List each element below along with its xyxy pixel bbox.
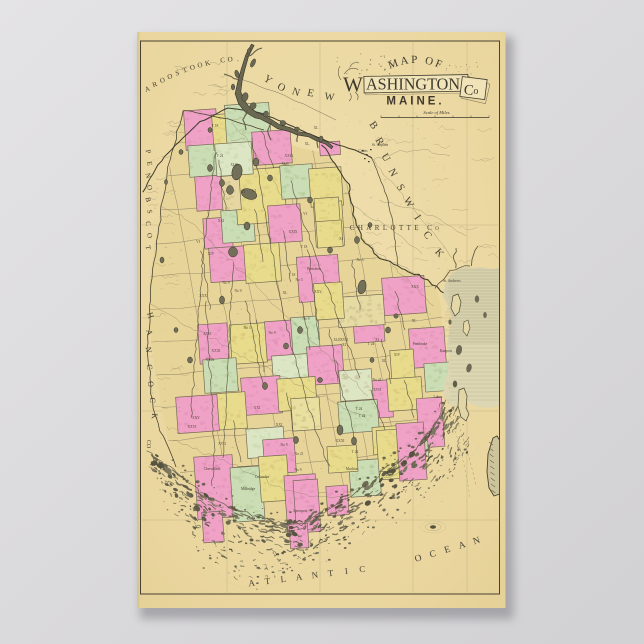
svg-text:XIV: XIV bbox=[394, 353, 401, 357]
svg-text:T 24: T 24 bbox=[352, 450, 359, 454]
svg-text:Milbridge: Milbridge bbox=[241, 487, 256, 491]
svg-text:St. Andrews: St. Andrews bbox=[443, 279, 461, 283]
svg-text:No 21: No 21 bbox=[386, 463, 395, 467]
svg-text:T 24: T 24 bbox=[359, 414, 366, 418]
svg-text:XXV: XXV bbox=[192, 416, 200, 420]
svg-text:ASHINGTON: ASHINGTON bbox=[366, 75, 460, 94]
svg-text:XXIX: XXIX bbox=[289, 230, 298, 234]
svg-text:Eastport: Eastport bbox=[440, 349, 452, 353]
svg-text:N: N bbox=[144, 346, 154, 353]
svg-text:XXIX: XXIX bbox=[206, 358, 215, 362]
svg-text:T 18: T 18 bbox=[212, 124, 219, 128]
svg-text:No 3: No 3 bbox=[356, 258, 363, 262]
svg-text:No 3: No 3 bbox=[243, 326, 250, 330]
svg-text:XXX: XXX bbox=[199, 294, 207, 298]
svg-text:Cherryfield: Cherryfield bbox=[204, 467, 221, 471]
svg-text:No 9: No 9 bbox=[302, 317, 309, 321]
svg-text:XXXI: XXXI bbox=[212, 349, 222, 353]
svg-text:XVII: XVII bbox=[218, 442, 226, 446]
svg-text:No 9: No 9 bbox=[234, 289, 241, 293]
svg-text:W: W bbox=[324, 91, 335, 103]
svg-text:K: K bbox=[150, 413, 159, 420]
svg-text:No 9: No 9 bbox=[294, 468, 301, 472]
svg-text:No 9: No 9 bbox=[280, 443, 287, 447]
svg-text:Columbia: Columbia bbox=[255, 475, 270, 479]
svg-text:Machias: Machias bbox=[346, 467, 359, 471]
svg-text:CHARLOTTE CO: CHARLOTTE CO bbox=[350, 224, 442, 232]
svg-text:XIV: XIV bbox=[208, 252, 215, 256]
svg-text:XL: XL bbox=[403, 461, 408, 465]
svg-text:C: C bbox=[145, 364, 154, 370]
svg-text:XXI: XXI bbox=[276, 423, 283, 427]
svg-text:Jonesport: Jonesport bbox=[293, 509, 307, 513]
svg-text:XXXI: XXXI bbox=[336, 439, 346, 443]
svg-text:XL: XL bbox=[283, 291, 288, 295]
svg-text:T 18: T 18 bbox=[289, 273, 296, 277]
svg-text:XL: XL bbox=[314, 126, 319, 130]
svg-text:T 24: T 24 bbox=[217, 154, 224, 158]
svg-text:XXVI: XXVI bbox=[188, 425, 198, 429]
svg-text:XVII: XVII bbox=[373, 388, 381, 392]
svg-text:CO: CO bbox=[145, 440, 151, 449]
svg-text:MAINE.: MAINE. bbox=[386, 95, 444, 107]
svg-text:C: C bbox=[148, 397, 157, 403]
svg-text:XVII: XVII bbox=[203, 332, 211, 336]
svg-text:XL: XL bbox=[412, 319, 417, 323]
svg-text:XLII: XLII bbox=[281, 162, 289, 166]
svg-text:XXI: XXI bbox=[254, 406, 261, 410]
svg-text:Pembroke: Pembroke bbox=[413, 342, 428, 346]
svg-text:XVII: XVII bbox=[340, 338, 348, 342]
svg-text:Scale of Miles.: Scale of Miles. bbox=[423, 110, 450, 115]
svg-text:XXX: XXX bbox=[411, 285, 419, 289]
svg-text:XXIX: XXIX bbox=[285, 154, 294, 158]
svg-text:XL: XL bbox=[382, 359, 387, 363]
svg-text:XLII: XLII bbox=[230, 163, 238, 167]
svg-text:No 9: No 9 bbox=[268, 331, 275, 335]
svg-text:T 24: T 24 bbox=[356, 407, 363, 411]
svg-text:Princeton: Princeton bbox=[307, 267, 321, 271]
svg-text:Lubec: Lubec bbox=[434, 395, 443, 399]
svg-text:C: C bbox=[359, 564, 366, 575]
svg-text:No 3: No 3 bbox=[295, 278, 302, 282]
svg-text:XXI: XXI bbox=[218, 219, 225, 223]
svg-text:W: W bbox=[343, 73, 363, 97]
svg-text:T 18: T 18 bbox=[301, 245, 308, 249]
svg-text:O: O bbox=[146, 381, 155, 387]
svg-text:No 21: No 21 bbox=[295, 452, 304, 456]
